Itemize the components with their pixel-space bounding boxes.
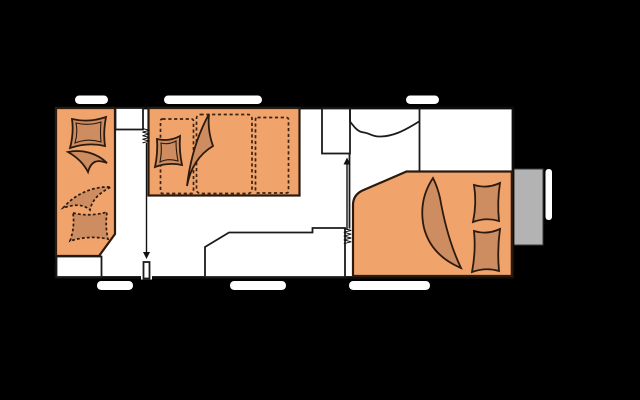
window-bottom-left — [97, 281, 133, 290]
side-cabinet — [116, 108, 144, 130]
floorplan-canvas — [0, 0, 640, 400]
washroom-cabinet — [322, 109, 350, 154]
window-top-middle — [164, 96, 262, 105]
bed-cushion-2 — [472, 229, 500, 272]
window-bottom-right — [349, 281, 430, 290]
kitchen-counter — [205, 228, 345, 277]
gas-locker-box — [514, 169, 544, 245]
rear-bench — [57, 257, 102, 278]
window-bottom-middle — [230, 281, 286, 290]
bunk-cushion — [155, 136, 182, 167]
bed-cushion-1 — [473, 183, 500, 222]
lounge-cushion-dashed — [70, 212, 108, 241]
window-top-left — [75, 96, 108, 105]
window-top-right — [406, 96, 439, 105]
entry-door-leaf — [144, 262, 150, 279]
drawbar-handle — [546, 169, 553, 220]
